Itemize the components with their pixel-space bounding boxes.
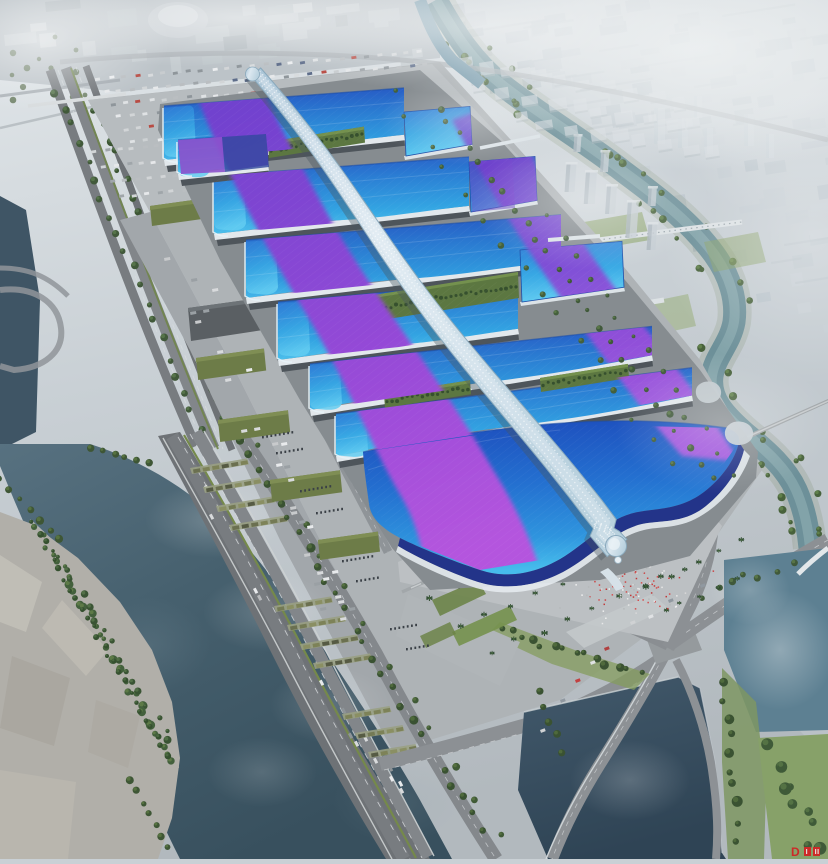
svg-text:D: D: [791, 845, 800, 859]
